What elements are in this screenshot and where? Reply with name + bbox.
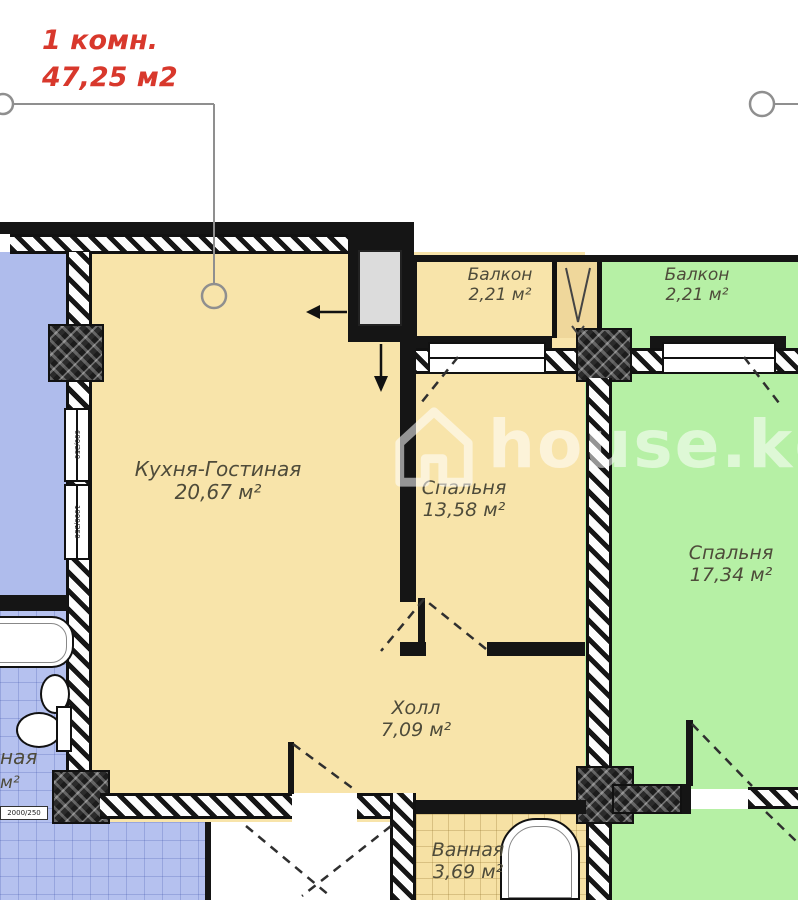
callout-circle xyxy=(202,284,226,308)
door-swing xyxy=(246,826,330,896)
callout-circle xyxy=(750,92,774,116)
door-swing xyxy=(381,599,424,651)
door-swing xyxy=(692,724,752,786)
divider-v-arrow xyxy=(572,326,584,334)
floor-plan: 600/250 1000/250 2000/250 1 комн. 47,25 … xyxy=(0,0,798,900)
left-arrow-icon xyxy=(306,305,320,319)
house-icon xyxy=(390,402,478,490)
door-swing xyxy=(293,744,355,790)
door-swing xyxy=(766,812,797,842)
divider-v-mark xyxy=(566,268,590,322)
door-swing xyxy=(424,599,486,649)
down-arrow-icon xyxy=(374,376,388,392)
door-swing xyxy=(744,357,779,403)
door-swing xyxy=(421,357,458,403)
door-swing xyxy=(302,826,391,896)
callout-circle xyxy=(0,94,13,114)
watermark-text: house.kg xyxy=(488,412,798,478)
